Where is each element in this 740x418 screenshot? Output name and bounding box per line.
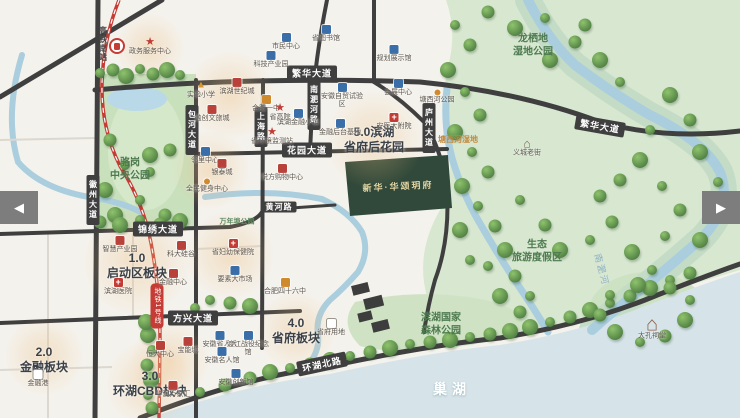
map-carousel: 新华·华颂玥府 巢湖 高铁南站 地铁1号线 繁华大道繁华大道花园大道黄河路锦绣大… bbox=[0, 0, 740, 418]
carousel-next-button[interactable]: ▶ bbox=[702, 191, 740, 224]
right-arrow-icon: ▶ bbox=[716, 200, 726, 216]
project-plot bbox=[345, 155, 452, 216]
left-arrow-icon: ◀ bbox=[14, 200, 24, 216]
carousel-prev-button[interactable]: ◀ bbox=[0, 191, 38, 224]
map-canvas bbox=[0, 0, 740, 418]
